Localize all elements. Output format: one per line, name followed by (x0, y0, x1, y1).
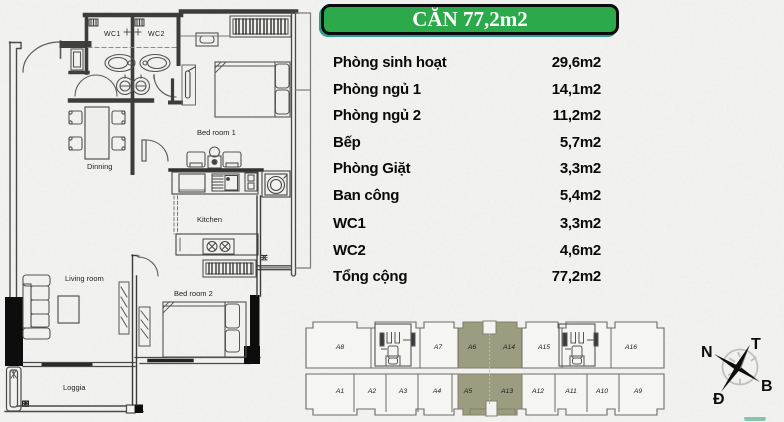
svg-text:A16: A16 (624, 344, 637, 351)
svg-text:A5: A5 (463, 388, 473, 395)
svg-text:A14: A14 (502, 344, 515, 351)
svg-text:B: B (761, 378, 773, 395)
svg-text:Dinning: Dinning (87, 162, 112, 171)
svg-text:Loggia: Loggia (63, 383, 86, 392)
svg-text:A4: A4 (432, 388, 442, 395)
svg-text:A13: A13 (500, 388, 513, 395)
svg-text:Bed room 1: Bed room 1 (197, 128, 236, 137)
svg-text:Đ: Đ (713, 391, 725, 408)
svg-text:A2: A2 (367, 388, 377, 395)
svg-text:A12: A12 (531, 388, 544, 395)
svg-text:A7: A7 (433, 344, 443, 351)
svg-text:Living room: Living room (65, 274, 104, 283)
svg-text:WC2: WC2 (148, 31, 165, 38)
svg-text:A6: A6 (467, 344, 477, 351)
svg-text:N: N (701, 344, 713, 361)
svg-text:Kitchen: Kitchen (197, 215, 222, 224)
svg-text:Bed room 2: Bed room 2 (174, 289, 213, 298)
svg-text:A9: A9 (633, 388, 643, 395)
svg-text:A1: A1 (335, 388, 345, 395)
svg-text:A15: A15 (537, 344, 550, 351)
svg-text:T: T (751, 336, 761, 353)
svg-text:WC1: WC1 (104, 31, 121, 38)
svg-text:A11: A11 (564, 388, 577, 395)
svg-text:A3: A3 (398, 388, 408, 395)
svg-text:A8: A8 (335, 344, 345, 351)
svg-text:A10: A10 (595, 388, 608, 395)
